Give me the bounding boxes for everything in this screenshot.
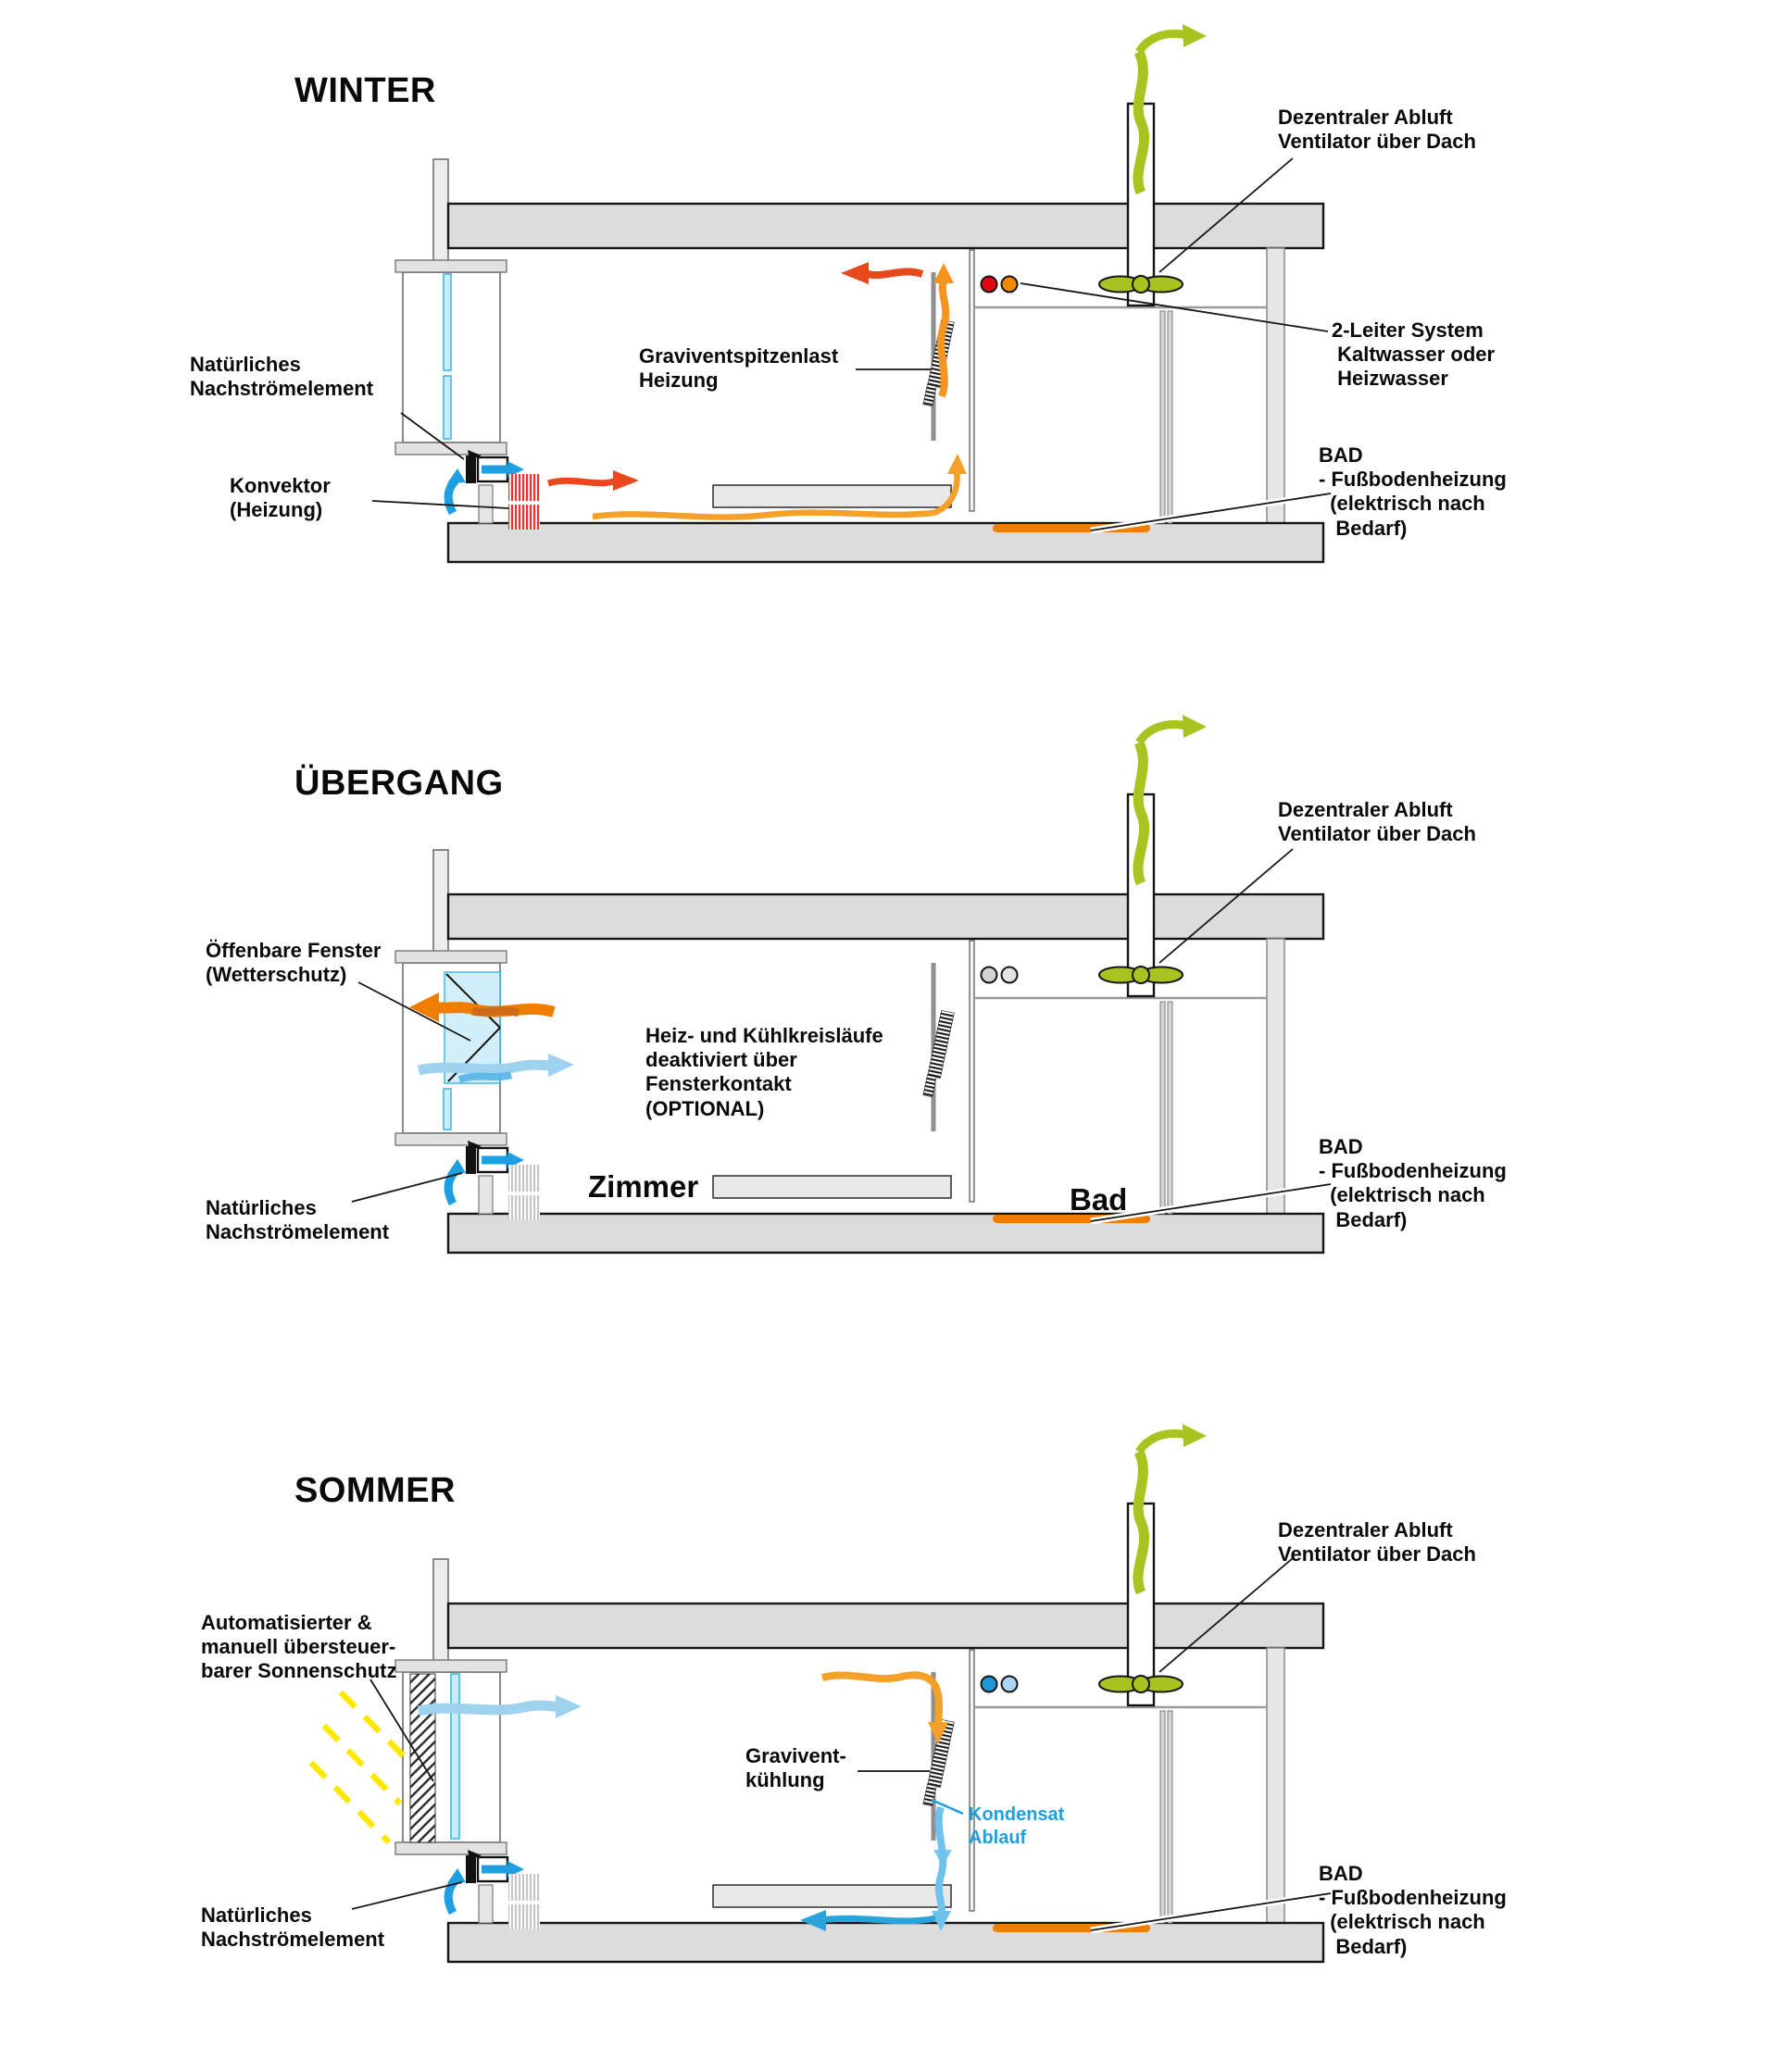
valve-indicator-cooling (982, 1677, 997, 1692)
uebergang-heizkuehl-label: Heiz- und Kühlkreisläufe deaktiviert übe… (645, 1024, 883, 1121)
winter-title: WINTER (294, 70, 436, 112)
sommer-abluft-label: Dezentraler Abluft Ventilator über Dach (1278, 1518, 1476, 1566)
uebergang-nachstroem-label: Natürliches Nachströmelement (206, 1196, 389, 1244)
glazing-lower (444, 1089, 451, 1130)
valve-indicator-cool (1002, 1677, 1018, 1692)
uebergang-zimmer-label: Zimmer (588, 1168, 698, 1205)
ceiling-warm-arrow (841, 262, 869, 284)
glazing-lower (444, 376, 451, 439)
uebergang-bad-label: BAD - Fußbodenheizung (elektrisch nach B… (1319, 1135, 1507, 1232)
sun-shade (410, 1674, 435, 1842)
valve-indicator-off (1002, 967, 1018, 983)
winter-zweileiter-label: 2-Leiter System Kaltwasser oder Heizwass… (1332, 318, 1495, 392)
winter-bad-label: BAD - Fußbodenheizung (elektrisch nach B… (1319, 443, 1507, 541)
winter-abluft-label: Dezentraler Abluft Ventilator über Dach (1278, 106, 1476, 154)
floor-return-flow (593, 513, 933, 518)
fresh-air-in-arrow (548, 1054, 574, 1077)
winter-gravivent-label: Graviventspitzenlast Heizung (639, 344, 838, 393)
uebergang-title: ÜBERGANG (294, 763, 504, 805)
uebergang-abluft-label: Dezentraler Abluft Ventilator über Dach (1278, 798, 1476, 846)
convector-inactive (508, 1874, 540, 1901)
sommer-kondensat-label: Kondensat Ablauf (969, 1804, 1064, 1850)
winter-konvektor-label: Konvektor (Heizung) (230, 474, 331, 522)
diagram-canvas (0, 0, 1778, 2072)
sommer-title: SOMMER (294, 1470, 456, 1512)
convector-inactive (508, 1165, 540, 1192)
rising-warm-arrow (933, 263, 954, 283)
section-winter-drawing (372, 24, 1331, 562)
valve-indicator-heating (982, 277, 997, 293)
glazing (451, 1674, 459, 1839)
sommer-bad-label: BAD - Fußbodenheizung (elektrisch nach B… (1319, 1862, 1507, 1959)
sommer-sonnenschutz-label: Automatisierter & manuell übersteuer- ba… (201, 1611, 396, 1684)
hvac-seasons-diagram: WINTER Natürliches Nachströmelement Konv… (0, 0, 1778, 2072)
section-sommer-drawing (311, 1424, 1331, 1962)
valve-indicator-off (982, 967, 997, 983)
winter-nachstroem-label: Natürliches Nachströmelement (190, 353, 373, 401)
cool-air-in-arrow (556, 1695, 582, 1718)
uebergang-fenster-label: Öffenbare Fenster (Wetterschutz) (206, 939, 382, 987)
sommer-nachstroem-label: Natürliches Nachströmelement (201, 1903, 384, 1952)
valve-indicator-warm (1002, 277, 1018, 293)
uebergang-bad-room-label: Bad (1070, 1181, 1127, 1217)
convector-out-arrow (613, 470, 639, 491)
glazing-upper (444, 274, 451, 370)
convector-active (508, 474, 540, 501)
sommer-gravivent-label: Gravivent- kühlung (745, 1744, 846, 1792)
sun-rays (311, 1692, 408, 1842)
